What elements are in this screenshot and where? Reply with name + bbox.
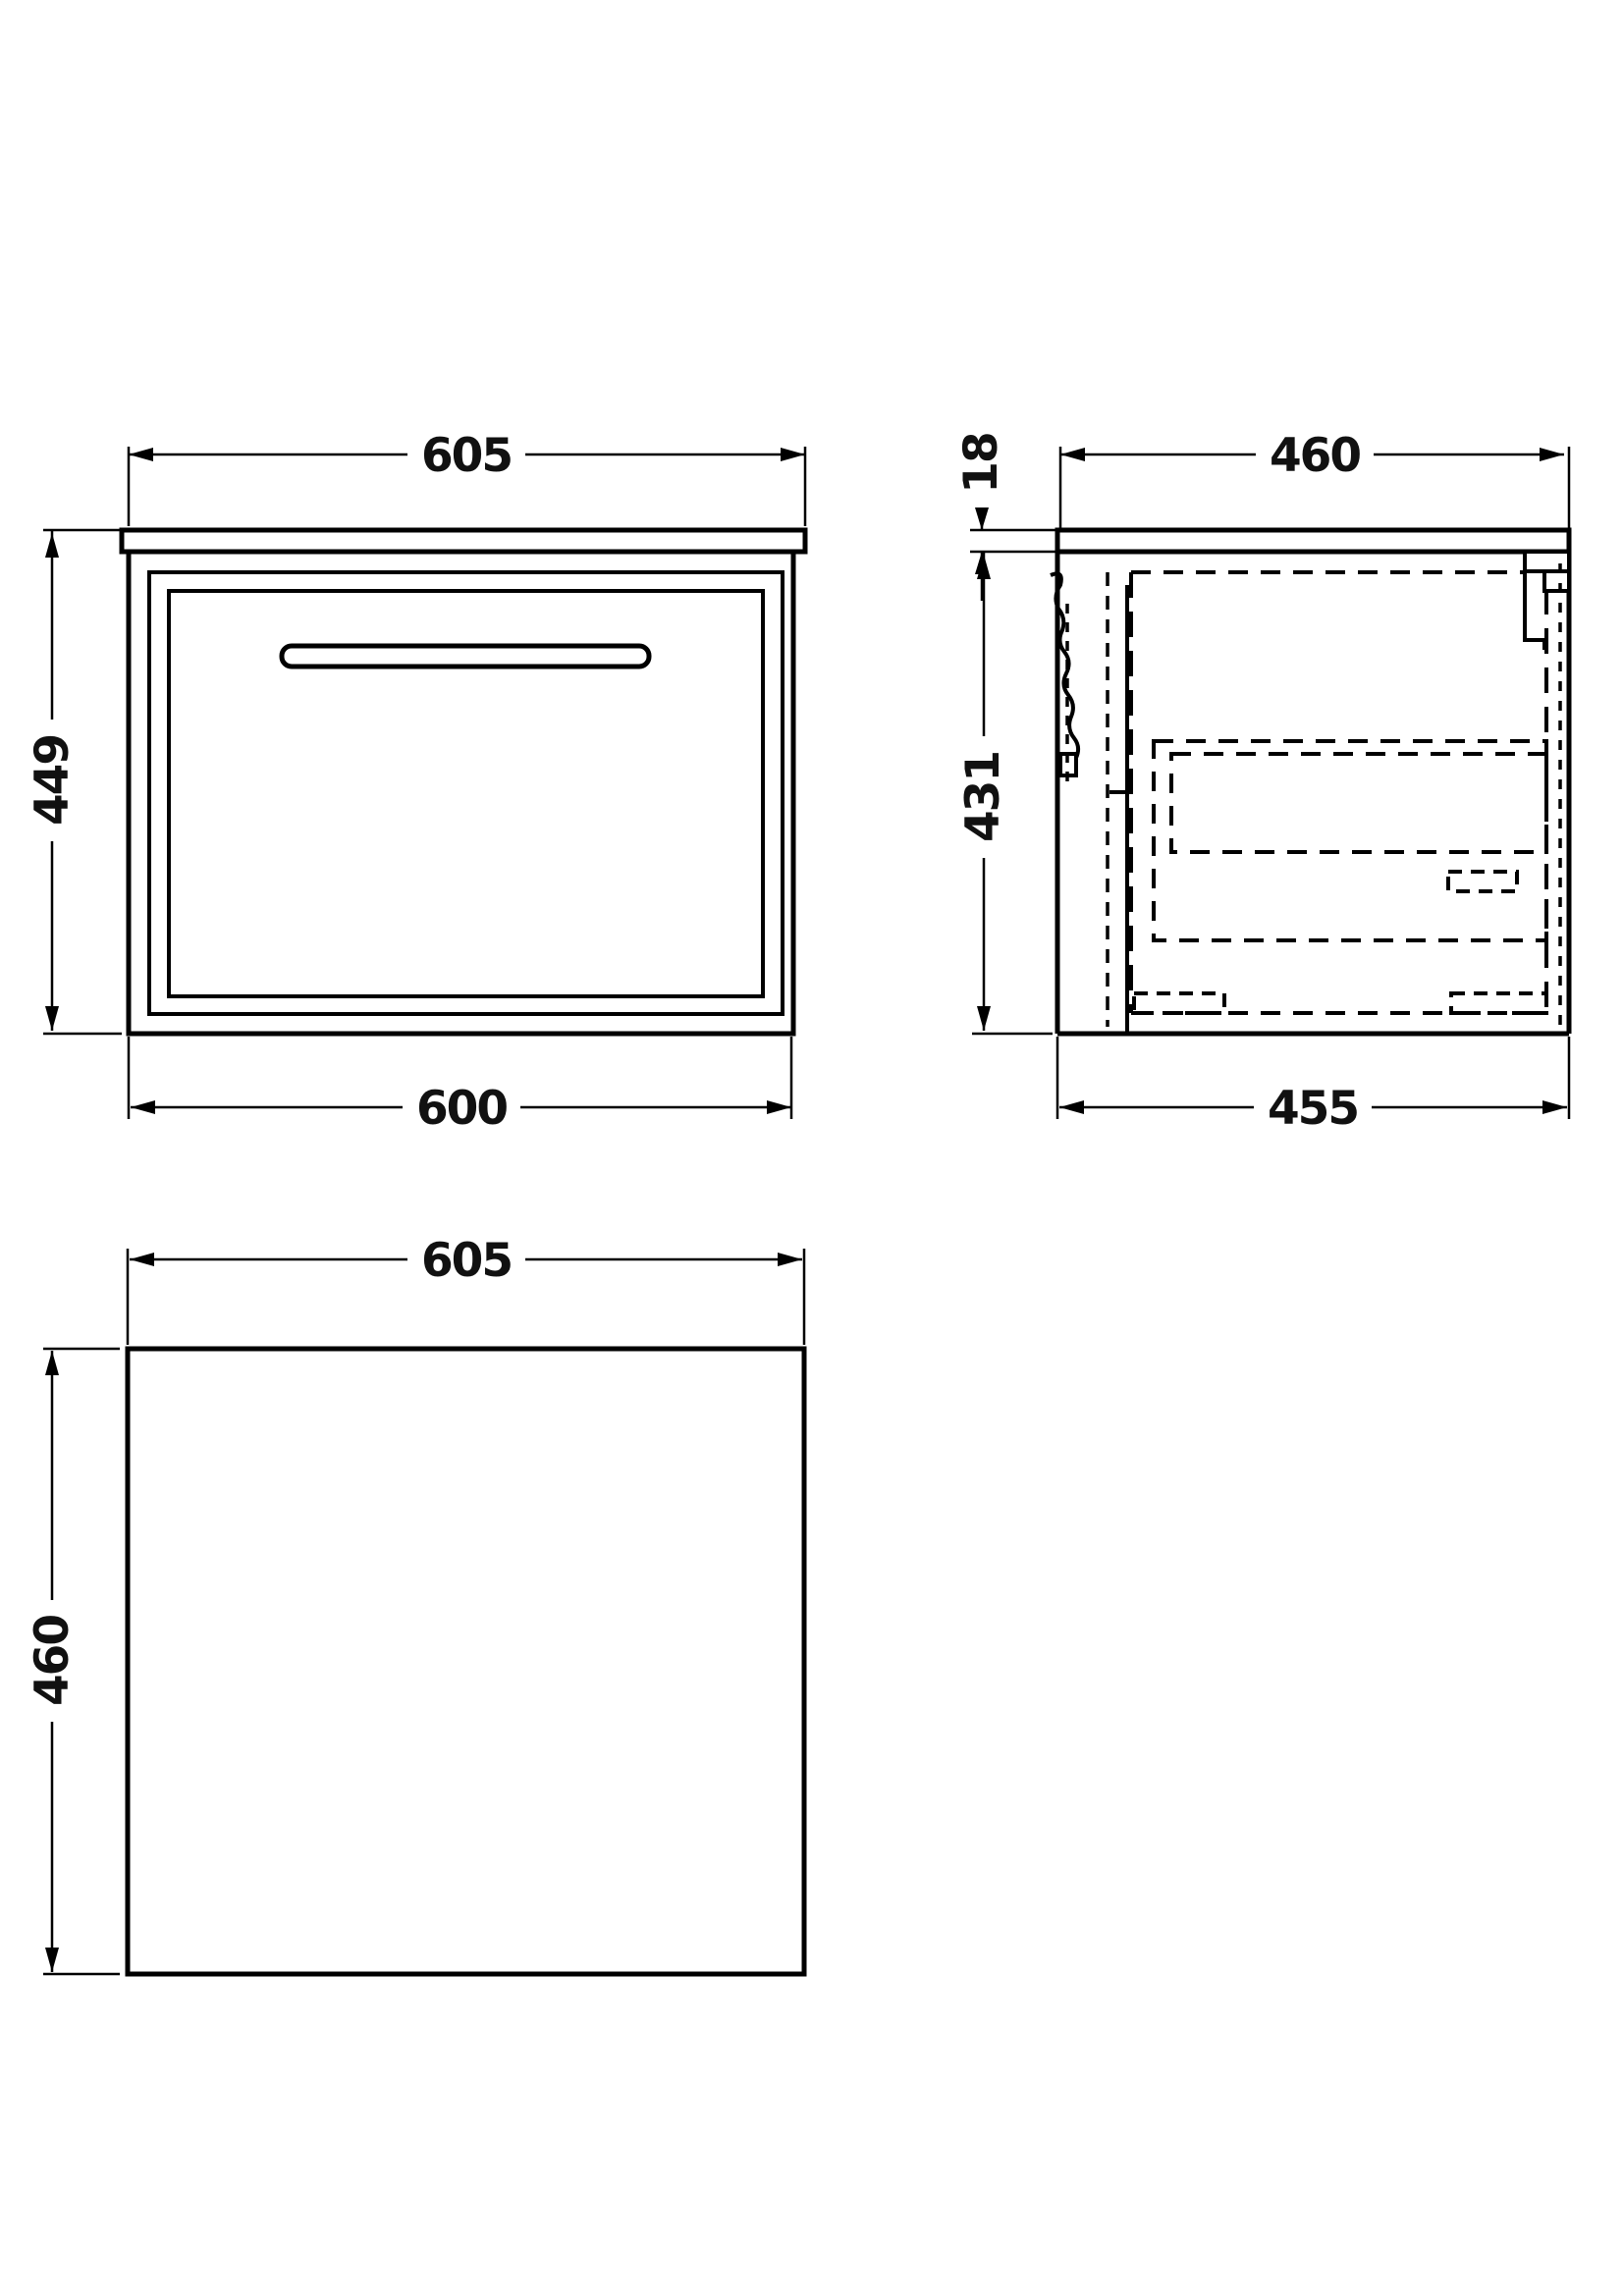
side-dim-body-height: 431 bbox=[956, 552, 1053, 1034]
arrowhead-left bbox=[1059, 1100, 1084, 1114]
vanity-unit-drawing: 605 449 600 bbox=[0, 0, 1623, 2296]
side-worktop bbox=[1057, 530, 1569, 552]
drawer-cavity-inner bbox=[1171, 754, 1546, 852]
drawer-cavity-outline bbox=[1154, 741, 1546, 940]
rotated-label-group: 460 bbox=[26, 1600, 80, 1722]
side-dim-worktop-thickness: 18 bbox=[954, 419, 1055, 601]
arrowhead-left bbox=[131, 1100, 155, 1114]
wall-bracket-upper bbox=[1525, 552, 1569, 571]
side-worktop-thickness-label: 18 bbox=[954, 433, 1008, 493]
handle-side-profile bbox=[1051, 573, 1078, 758]
arrowhead-left bbox=[129, 448, 153, 461]
front-inner-frame bbox=[149, 572, 783, 1014]
side-body-height-label: 431 bbox=[956, 752, 1010, 842]
arrowhead-left bbox=[130, 1253, 154, 1266]
base-bracket-front bbox=[1134, 993, 1224, 1013]
rotated-label-group: 18 bbox=[954, 419, 1008, 507]
front-dim-width-bottom: 600 bbox=[129, 1037, 791, 1136]
side-dim-depth-top: 460 bbox=[1060, 429, 1569, 528]
arrowhead-bottom bbox=[45, 1948, 59, 1972]
front-drawer-handle bbox=[282, 646, 649, 667]
arrowhead-top bbox=[45, 1351, 59, 1375]
side-view bbox=[1051, 530, 1569, 1034]
side-dim-depth-bottom: 455 bbox=[1057, 1037, 1569, 1136]
front-dim-height-left: 449 bbox=[26, 530, 122, 1034]
arrowhead-bottom bbox=[45, 1006, 59, 1031]
arrowhead-right bbox=[778, 1253, 802, 1266]
arrowhead-down bbox=[975, 507, 989, 530]
front-drawer-front bbox=[169, 591, 763, 996]
front-worktop bbox=[122, 530, 805, 552]
plan-dim-width-top: 605 bbox=[128, 1234, 804, 1345]
front-cabinet-outline bbox=[129, 552, 793, 1034]
side-depth-top-label: 460 bbox=[1270, 429, 1360, 483]
wall-bracket-profile bbox=[1525, 571, 1544, 650]
arrowhead-right bbox=[1540, 448, 1564, 461]
plan-worktop-outline bbox=[128, 1349, 804, 1974]
arrowhead-right bbox=[1542, 1100, 1567, 1114]
wall-bracket-step bbox=[1544, 571, 1569, 591]
front-width-top-label: 605 bbox=[421, 429, 512, 483]
front-dim-width-top: 605 bbox=[129, 429, 805, 526]
base-bracket-back bbox=[1451, 993, 1546, 1013]
plan-dim-depth-left: 460 bbox=[26, 1349, 120, 1974]
rotated-label-group: 431 bbox=[956, 736, 1010, 858]
arrowhead-right bbox=[767, 1100, 791, 1114]
plan-depth-label: 460 bbox=[26, 1616, 80, 1706]
front-height-label: 449 bbox=[26, 735, 80, 826]
side-depth-bottom-label: 455 bbox=[1268, 1082, 1358, 1136]
front-width-bottom-label: 600 bbox=[416, 1082, 507, 1136]
arrowhead-right bbox=[781, 448, 805, 461]
rotated-label-group: 449 bbox=[26, 720, 80, 841]
plan-width-label: 605 bbox=[421, 1234, 512, 1288]
arrowhead-bottom bbox=[977, 1006, 991, 1031]
technical-drawing-page: 605 449 600 bbox=[0, 0, 1623, 2296]
arrowhead-top bbox=[45, 533, 59, 558]
front-view bbox=[122, 530, 805, 1034]
drawer-slide-detail bbox=[1448, 872, 1517, 891]
arrowhead-left bbox=[1060, 448, 1085, 461]
plan-view bbox=[128, 1349, 804, 1974]
